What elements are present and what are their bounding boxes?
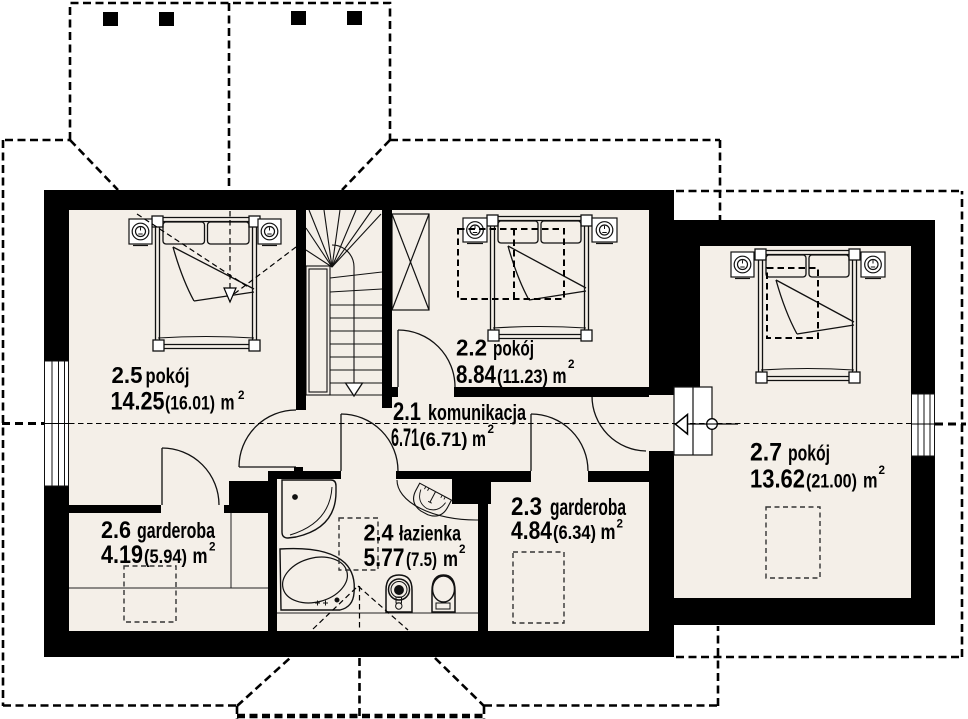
svg-text:8.84: 8.84 <box>456 361 496 389</box>
svg-text:2.1: 2.1 <box>393 398 421 426</box>
svg-text:komunikacja: komunikacja <box>428 400 527 425</box>
svg-text:m: m <box>863 470 878 493</box>
svg-text:2.5: 2.5 <box>112 362 143 388</box>
svg-text:(6.71): (6.71) <box>420 430 468 451</box>
svg-text:4.19: 4.19 <box>101 541 143 569</box>
svg-text:garderoba: garderoba <box>137 518 216 543</box>
svg-text:2: 2 <box>879 465 886 477</box>
svg-text:(7.5): (7.5) <box>406 550 437 571</box>
svg-text:14.25: 14.25 <box>111 388 165 416</box>
svg-text:m: m <box>193 545 208 568</box>
svg-text:4.84: 4.84 <box>511 517 552 545</box>
svg-text:pokój: pokój <box>788 441 830 466</box>
svg-text:m: m <box>472 428 486 451</box>
svg-text:2.6: 2.6 <box>101 517 131 544</box>
svg-text:2.4: 2.4 <box>364 520 394 546</box>
svg-text:m: m <box>553 365 567 388</box>
svg-text:2: 2 <box>568 359 575 371</box>
svg-text:(11.23): (11.23) <box>497 367 548 388</box>
svg-text:2.2: 2.2 <box>456 335 487 361</box>
svg-text:5.77: 5.77 <box>364 544 405 572</box>
svg-text:(16.01): (16.01) <box>165 394 215 415</box>
svg-text:garderoba: garderoba <box>550 494 626 520</box>
svg-text:2: 2 <box>238 390 245 402</box>
svg-text:m: m <box>221 392 235 415</box>
svg-text:(5.94): (5.94) <box>144 547 187 568</box>
svg-text:2: 2 <box>617 519 624 531</box>
svg-text:m: m <box>601 521 616 544</box>
svg-text:2: 2 <box>488 424 495 436</box>
svg-text:pokój: pokój <box>493 338 534 361</box>
svg-text:2: 2 <box>459 544 466 556</box>
svg-text:6.71: 6.71 <box>391 424 419 452</box>
svg-text:2: 2 <box>209 542 216 554</box>
svg-text:łazienka: łazienka <box>399 523 461 546</box>
svg-text:2.7: 2.7 <box>750 439 782 467</box>
svg-text:13.62: 13.62 <box>750 464 805 494</box>
svg-text:m: m <box>443 548 458 571</box>
svg-text:(21.00): (21.00) <box>806 471 857 493</box>
svg-text:(6.34): (6.34) <box>553 523 596 544</box>
svg-text:pokój: pokój <box>146 365 190 388</box>
